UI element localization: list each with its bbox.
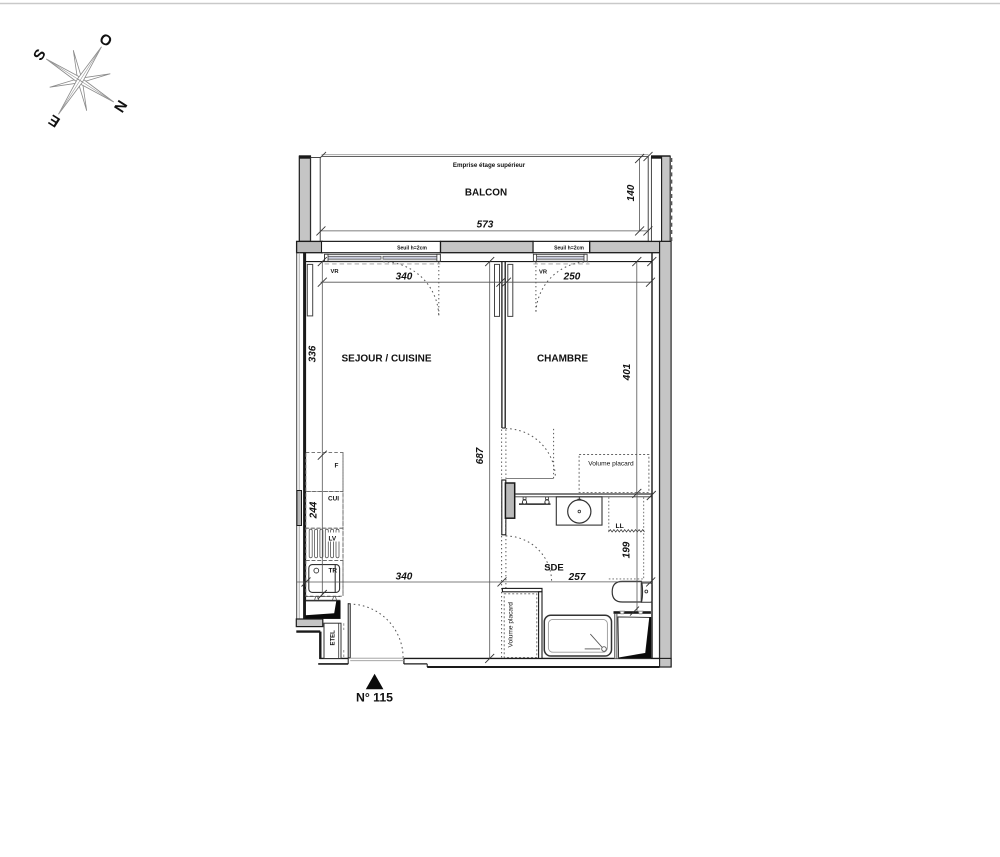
svg-text:SDE: SDE bbox=[544, 562, 564, 573]
svg-text:CHAMBRE: CHAMBRE bbox=[537, 354, 588, 365]
svg-text:TR: TR bbox=[329, 568, 338, 575]
svg-text:N° 115: N° 115 bbox=[356, 690, 393, 704]
svg-text:N: N bbox=[110, 97, 130, 115]
svg-text:LL: LL bbox=[616, 523, 624, 530]
svg-text:E: E bbox=[46, 111, 64, 131]
svg-text:340: 340 bbox=[396, 572, 413, 583]
svg-text:VR: VR bbox=[331, 269, 340, 275]
svg-text:573: 573 bbox=[477, 220, 494, 231]
svg-text:Seuil h=2cm: Seuil h=2cm bbox=[397, 246, 427, 252]
svg-text:O: O bbox=[96, 30, 115, 51]
svg-text:199: 199 bbox=[621, 541, 632, 558]
svg-text:F: F bbox=[335, 463, 339, 470]
svg-text:ETEL: ETEL bbox=[331, 630, 337, 646]
svg-text:SEJOUR / CUISINE: SEJOUR / CUISINE bbox=[341, 354, 431, 365]
svg-text:BALCON: BALCON bbox=[465, 188, 507, 199]
svg-text:Volume placard: Volume placard bbox=[588, 461, 634, 468]
svg-text:Volume placard: Volume placard bbox=[508, 602, 515, 648]
svg-text:Emprise étage supérieur: Emprise étage supérieur bbox=[453, 162, 526, 169]
svg-text:LV: LV bbox=[329, 536, 337, 543]
svg-text:S: S bbox=[30, 46, 50, 64]
svg-text:CUI: CUI bbox=[328, 496, 339, 503]
svg-text:VR: VR bbox=[539, 269, 548, 275]
svg-text:257: 257 bbox=[568, 572, 586, 583]
svg-text:340: 340 bbox=[396, 271, 413, 282]
svg-text:687: 687 bbox=[475, 447, 486, 464]
svg-text:Seuil h=2cm: Seuil h=2cm bbox=[554, 246, 584, 252]
svg-text:250: 250 bbox=[563, 271, 581, 282]
svg-text:401: 401 bbox=[622, 363, 633, 381]
svg-text:140: 140 bbox=[626, 184, 637, 201]
svg-text:336: 336 bbox=[308, 345, 319, 362]
svg-text:244: 244 bbox=[309, 501, 320, 519]
